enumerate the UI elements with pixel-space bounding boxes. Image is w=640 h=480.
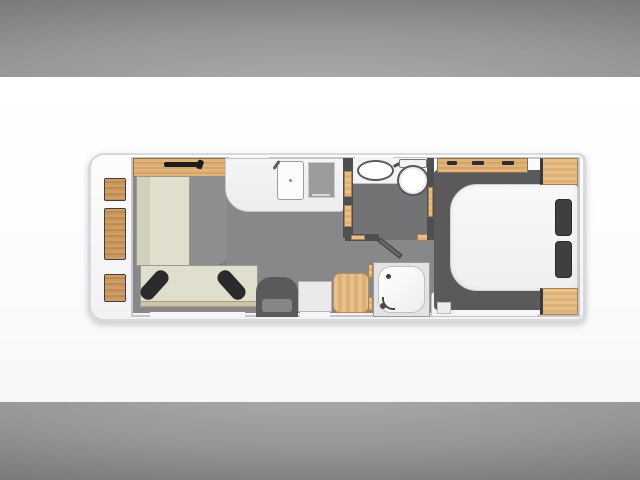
- shower-drain: [386, 274, 391, 279]
- sofa-bottom-trim: [140, 301, 258, 307]
- bedroom-cabinet-top-right: [540, 158, 578, 185]
- front-shelf: [133, 158, 228, 177]
- caravan-interior: [131, 157, 580, 317]
- bedroom-shelf-handle-3: [502, 161, 514, 165]
- front-locker-middle: [104, 208, 126, 260]
- bedroom-cabinet-bottom-right: [540, 288, 578, 315]
- sink-drain: [289, 179, 292, 182]
- front-locker-bottom: [104, 274, 126, 302]
- toilet-bowl: [397, 165, 429, 196]
- stool-table: [333, 273, 369, 313]
- bedside-unit: [437, 302, 451, 314]
- washroom-partition-frame-bottom: [344, 205, 352, 227]
- washroom-partition-frame-top: [344, 171, 352, 197]
- bedroom-bottom-window: [455, 310, 537, 316]
- pillow-top: [555, 199, 572, 236]
- pillow-bottom: [555, 241, 572, 278]
- sofa-left-backrest: [137, 177, 150, 265]
- shower-head: [380, 303, 386, 309]
- lounge-bottom-window: [150, 312, 245, 317]
- hob-rail: [312, 194, 330, 196]
- bedroom-shelf-handle-2: [472, 161, 484, 165]
- hob: [308, 162, 335, 198]
- front-shelf-fitting: [164, 162, 200, 167]
- caravan-floorplan: [88, 152, 586, 322]
- backdrop-top-bar: [0, 0, 640, 77]
- washbasin: [357, 160, 394, 181]
- image-canvas: [0, 77, 640, 402]
- washroom-wall-right-frame: [428, 187, 433, 217]
- mid-bottom-window: [300, 312, 330, 317]
- lounge-table: [190, 176, 227, 266]
- bedroom-shelf-handle-1: [447, 161, 457, 165]
- front-locker-top: [104, 178, 126, 201]
- side-cabinet: [298, 281, 332, 312]
- washroom-doorframe-left: [351, 235, 365, 240]
- backdrop-bottom-bar: [0, 402, 640, 480]
- entrance-step: [262, 299, 292, 312]
